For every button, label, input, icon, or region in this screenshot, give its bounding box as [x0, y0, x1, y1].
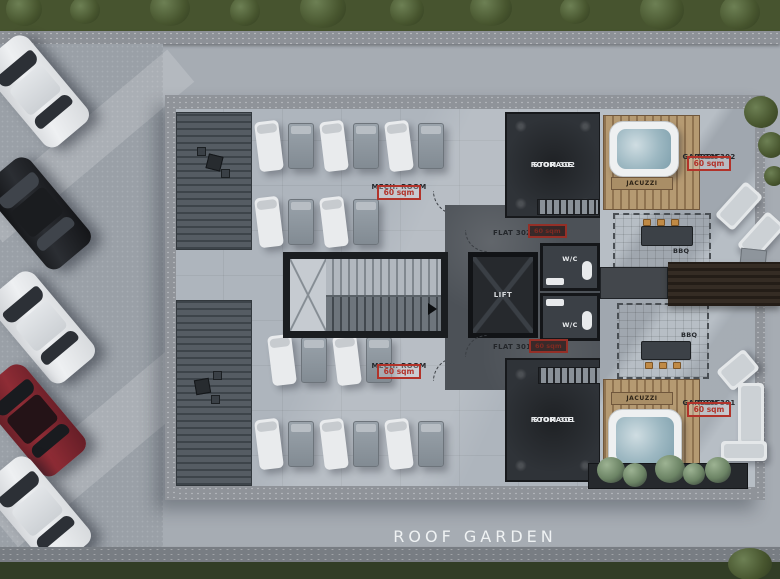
jacuzzi-label-strip: JACUZZI [611, 392, 673, 405]
bbq-label-bottom: BBQ [681, 331, 697, 339]
sun-lounger-pair [257, 417, 317, 471]
dining-table [641, 226, 693, 246]
sun-lounger-pair [257, 119, 317, 173]
floor-plan-title: ROOF GARDEN [390, 527, 560, 546]
sun-lounger-pair [322, 119, 382, 173]
dining-chair [659, 362, 667, 369]
sun-lounger-pair [387, 417, 447, 471]
tree [728, 548, 772, 579]
sun-lounger-pair [322, 417, 382, 471]
plant [705, 457, 731, 483]
plant [758, 132, 780, 158]
jacuzzi-label: JACUZZI [626, 395, 657, 402]
dining-chair [657, 219, 665, 226]
stair-landing [290, 259, 326, 331]
plant [623, 463, 647, 487]
jacuzzi-label: JACUZZI [626, 180, 657, 187]
sink [546, 299, 564, 306]
sun-lounger-pair [270, 333, 330, 387]
plant [655, 455, 685, 483]
jacuzzi-label-strip: JACUZZI [611, 177, 673, 190]
kerb [0, 547, 780, 563]
bbq-label-top: BBQ [673, 247, 689, 255]
plant [764, 166, 780, 186]
timber-deck-bottom [176, 300, 252, 486]
stairwell [283, 252, 448, 338]
bistro-chair [211, 395, 220, 404]
dining-chair [643, 219, 651, 226]
flat-301-label: FLAT 301 [493, 343, 531, 351]
dining-chair [673, 362, 681, 369]
plant [597, 457, 625, 483]
plant [683, 463, 705, 485]
sofa [738, 383, 764, 445]
outdoor-kitchen-counter [600, 267, 668, 299]
pergola-roof-slats [668, 262, 780, 306]
toilet [582, 261, 592, 280]
grass-strip-bottom [0, 562, 780, 579]
flat-302-label: FLAT 302 [493, 229, 531, 237]
dining-table [641, 341, 691, 360]
wc-room-top: W/C [540, 243, 600, 291]
boundary-wall-top [0, 31, 780, 44]
sun-lounger-pair [322, 195, 382, 249]
bistro-chair [221, 169, 230, 178]
flat-301-area-badge: 60 sqm [529, 339, 568, 353]
timber-deck-top [176, 112, 252, 250]
sun-lounger-pair [387, 119, 447, 173]
storage-label: ROOM 301 [531, 415, 576, 426]
dining-chair [645, 362, 653, 369]
area-badge: 60 sqm [377, 364, 422, 379]
plant [744, 96, 778, 128]
wc-room-bottom: W/C [540, 293, 600, 341]
dining-chair [671, 219, 679, 226]
roof-garden-floor-plan: MECH. ROOM 60 sqm MECH. ROOM 60 sqm LIFT… [0, 0, 780, 579]
storage-label: ROOM 302 [531, 160, 576, 171]
area-badge: 60 sqm [687, 402, 732, 417]
stair-flight [326, 259, 441, 295]
pergola-dining-top [613, 213, 711, 269]
sink [546, 278, 564, 285]
area-badge: 60 sqm [687, 156, 732, 171]
parapet-left [165, 95, 176, 500]
bistro-chair [213, 371, 222, 380]
sun-lounger-pair [257, 195, 317, 249]
vent-grille [538, 367, 602, 384]
pergola-dining-bottom: BBQ [617, 303, 709, 379]
flat-302-area-badge: 60 sqm [528, 224, 567, 238]
roof-garden-302-annotation: ROOF GARDEN 302 60 sqm [665, 153, 753, 171]
vent-grille [537, 199, 599, 215]
bistro-table [194, 378, 211, 395]
area-badge: 60 sqm [377, 185, 422, 200]
bistro-chair [197, 147, 206, 156]
stair-direction-arrow [428, 303, 437, 315]
toilet [582, 311, 592, 330]
stair-flight [326, 297, 441, 331]
parapet-top [165, 95, 765, 109]
lift-label: LIFT [494, 291, 513, 299]
lift-shaft: LIFT [468, 252, 538, 338]
sofa [721, 441, 767, 461]
